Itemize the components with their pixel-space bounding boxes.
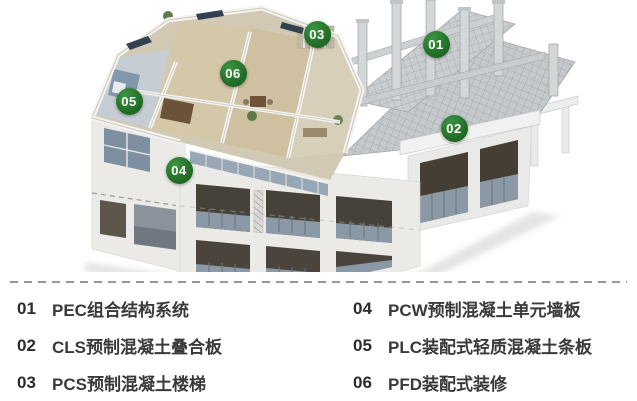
legend-label: CLS预制混凝土叠合板 [52,333,222,358]
marker-02-label: 02 [446,121,461,136]
dashed-separator [10,281,627,283]
legend-num: 02 [17,336,41,356]
sofa [303,128,327,137]
ground-opening [196,240,250,272]
marker-02[interactable]: 02 [441,115,468,142]
column [458,7,471,98]
marker-06[interactable]: 06 [220,60,247,87]
right-wing-opening [420,152,468,223]
legend-item-03: 03 PCS预制混凝土楼梯 [0,364,336,401]
legend-label: PEC组合结构系统 [52,296,189,321]
plant [247,111,257,121]
right-wing-opening [480,140,518,208]
center-facade [180,158,420,272]
legend-label: PLC装配式轻质混凝土条板 [388,333,592,358]
balcony-opening [266,190,320,238]
legend-item-06: 06 PFD装配式装修 [336,364,637,401]
marker-01-label: 01 [428,37,443,52]
legend: 01 PEC组合结构系统 02 CLS预制混凝土叠合板 03 PCS预制混凝土楼… [0,290,637,401]
legend-num: 03 [17,373,41,393]
left-small-window [100,200,126,238]
marker-05-label: 05 [121,94,136,109]
legend-label: PCW预制混凝土单元墙板 [388,296,581,321]
marker-04[interactable]: 04 [166,157,193,184]
marker-04-label: 04 [171,163,186,178]
legend-item-02: 02 CLS预制混凝土叠合板 [0,327,336,364]
louver-panel [254,190,263,233]
infographic-page: 01 02 03 04 05 06 01 PEC组合结构系统 02 CLS预制混… [0,0,637,401]
column [549,44,558,96]
legend-item-04: 04 PCW预制混凝土单元墙板 [336,290,637,327]
legend-num: 06 [353,373,377,393]
legend-num: 01 [17,299,41,319]
column [390,0,403,100]
marker-03-label: 03 [309,27,324,42]
legend-label: PFD装配式装修 [388,370,507,395]
legend-num: 04 [353,299,377,319]
building-illustration: 01 02 03 04 05 06 [0,0,637,272]
legend-item-01: 01 PEC组合结构系统 [0,290,336,327]
marker-03[interactable]: 03 [304,21,331,48]
balcony-opening [336,196,392,243]
marker-01[interactable]: 01 [423,31,450,58]
legend-num: 05 [353,336,377,356]
dining-table [250,96,266,107]
marker-05[interactable]: 05 [116,88,143,115]
marker-06-label: 06 [225,66,240,81]
legend-item-05: 05 PLC装配式轻质混凝土条板 [336,327,637,364]
legend-label: PCS预制混凝土楼梯 [52,370,206,395]
